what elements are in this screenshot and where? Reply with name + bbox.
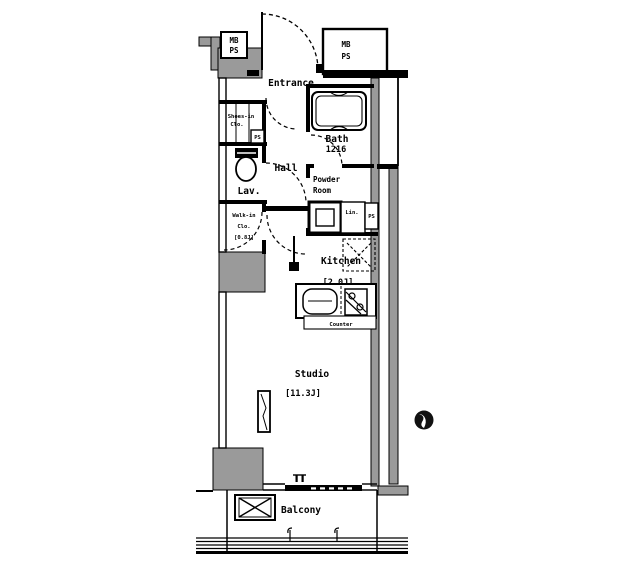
studio-size-label: [11.3J] — [285, 389, 321, 399]
studio: Studio [11.3J] — [258, 369, 329, 482]
washing-machine-drum — [316, 209, 334, 226]
pipe-shaft-small-linen-label: PS — [368, 214, 375, 220]
studio-door-arc — [267, 215, 307, 254]
evacuation-hatch — [235, 495, 275, 520]
wall-corridor-post — [289, 262, 299, 271]
balcony-railing — [196, 528, 408, 553]
window-dash — [338, 487, 343, 489]
lavatory: Lav. — [235, 148, 260, 197]
shoes-closet-label-2: Clo. — [230, 122, 243, 128]
linen-closet — [341, 202, 365, 233]
window-dash — [347, 487, 352, 489]
wall-hall-studio-threshold — [264, 206, 308, 211]
hall-door-arc — [266, 98, 297, 129]
gray-walls — [199, 37, 408, 495]
shoes-closet-label-1: Shoes-in — [228, 114, 255, 120]
meter-box-left-label-1: MB — [229, 36, 239, 45]
wall-right-connector — [377, 164, 398, 169]
wall-bath-bottom-right — [342, 164, 374, 168]
wall-top-right-bar — [323, 70, 408, 78]
wall-outer-right-step — [378, 486, 408, 495]
studio-label: Studio — [295, 369, 330, 380]
bathtub — [312, 92, 366, 130]
walk-in-closet: Walk-in Clo. [0.8J] — [232, 213, 255, 241]
walkin-label-1: Walk-in — [232, 213, 255, 219]
round-marker — [415, 411, 434, 430]
bath: Bath 1216 — [312, 92, 366, 155]
kitchen: Kitchen [2.0J] Counter — [296, 239, 376, 329]
floor-plan: MB PS MB PS — [0, 0, 640, 569]
window-dash — [311, 487, 316, 489]
wall-entrance-right-stub — [316, 64, 324, 73]
wall-walkin-block — [219, 252, 265, 292]
lavatory-label: Lav. — [238, 186, 261, 197]
entrance-door-arc — [262, 14, 318, 70]
studio-fixture-panel — [258, 391, 270, 432]
pipe-shaft-small-shoes-label: PS — [254, 135, 261, 141]
toilet-bowl — [236, 157, 256, 181]
wall-bath-top — [306, 84, 374, 88]
bath-size-label: 1216 — [326, 145, 346, 155]
linen-label: Lin. — [345, 210, 358, 216]
counter-label: Counter — [329, 322, 353, 328]
wall-bottom-left-block — [213, 448, 263, 490]
kitchen-label: Kitchen — [321, 256, 361, 267]
balcony: Balcony — [196, 490, 408, 553]
wall-left-studio — [219, 292, 226, 448]
stove — [345, 289, 367, 315]
wall-unit-right — [371, 78, 379, 486]
wall-hall-left-lower — [262, 240, 266, 254]
meter-box-right-label-1: MB — [341, 40, 351, 49]
wall-bath-left — [306, 84, 310, 132]
window-dash — [329, 487, 334, 489]
wall-outer-right — [389, 166, 398, 484]
vent-mark — [293, 475, 306, 482]
entrance-door — [262, 12, 318, 70]
meter-box-right-label-2: PS — [341, 52, 351, 61]
walkin-label-2: Clo. — [237, 224, 250, 230]
walkin-label-3: [0.8J] — [234, 235, 254, 241]
bath-label: Bath — [326, 134, 349, 145]
entrance-label: Entrance — [268, 78, 314, 89]
powder-room: Powder Room Lin. PS — [309, 175, 378, 233]
vent-tick — [302, 475, 304, 482]
wall-bath-bottom-left — [306, 164, 314, 168]
window-dash — [320, 487, 325, 489]
wall-lav-bottom — [219, 200, 267, 204]
balcony-label: Balcony — [281, 505, 321, 516]
wall-shoes-top — [219, 100, 267, 104]
floor-plan-canvas: MB PS MB PS — [0, 0, 640, 569]
powder-label-2: Room — [313, 186, 332, 195]
meter-box-left-label-2: PS — [229, 46, 239, 55]
powder-label-1: Powder — [313, 175, 341, 184]
hall-label: Hall — [275, 163, 298, 174]
wall-left-upper — [219, 78, 226, 252]
meter-box-right — [323, 29, 387, 74]
shoes-in-closet: Shoes-in Clo. PS — [228, 104, 264, 143]
wall-entrance-left-stub — [247, 70, 259, 76]
vent-tick — [296, 475, 298, 482]
